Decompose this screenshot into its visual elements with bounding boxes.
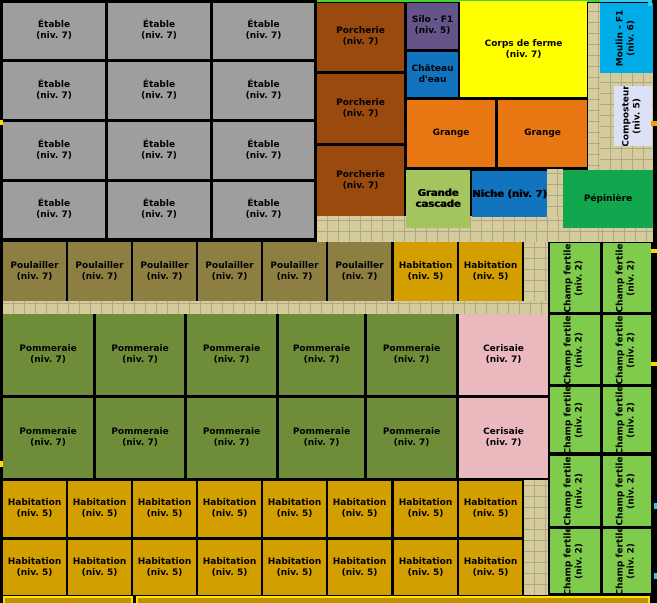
tile-label: Poulailler(niv. 7) — [205, 261, 253, 283]
tile-label-line: (niv. 7) — [335, 272, 383, 283]
edge-mark-yellow — [651, 249, 657, 253]
tile-label-line: Poulailler — [205, 261, 253, 272]
tile-label-line: (niv. 7) — [203, 438, 260, 449]
tile-label: Habitation(niv. 5) — [464, 557, 518, 579]
tile-etable[interactable]: Étable(niv. 7) — [213, 122, 314, 179]
tile-label-line: Château — [412, 64, 454, 75]
tile-label-line: (niv. 7) — [36, 31, 72, 42]
tile-label-line: (niv. 7) — [483, 438, 524, 449]
tile-poulailler[interactable]: Poulailler(niv. 7) — [263, 242, 326, 301]
tile-label: Champ fertile(niv. 2) — [564, 456, 586, 525]
tile-label-line: Champ fertile — [564, 387, 575, 452]
tile-label-line: (niv. 7) — [246, 31, 282, 42]
tile-etable[interactable]: Étable(niv. 7) — [3, 62, 105, 119]
tile-label: Habitation(niv. 5) — [203, 498, 257, 520]
tile-label-line: (niv. 7) — [10, 272, 58, 283]
tile-label: Habitation(niv. 5) — [203, 557, 257, 579]
edge-mark-yellow — [0, 120, 3, 125]
tile-label-line: (niv. 7) — [203, 355, 260, 366]
tile-label-line: (niv. 5) — [203, 509, 257, 520]
tile-label: Habitation(niv. 5) — [333, 557, 387, 579]
tile-habitation[interactable]: Habitation(niv. 5) — [328, 481, 391, 537]
tile-label: Habitation(niv. 5) — [73, 557, 127, 579]
tile-label-line: Habitation — [333, 557, 387, 568]
tile-label: Champ fertile(niv. 2) — [564, 243, 586, 312]
tile-label-line: (niv. 7) — [141, 210, 177, 221]
tile-champ-fertile[interactable]: Champ fertile(niv. 2) — [550, 243, 600, 312]
tile-label: Poulailler(niv. 7) — [140, 261, 188, 283]
tile-champ-fertile[interactable]: Champ fertile(niv. 2) — [603, 243, 651, 312]
tile-label-line: (niv. 7) — [111, 355, 168, 366]
tile-label-line: (niv. 7) — [336, 109, 385, 120]
tile-label: Habitation(niv. 5) — [73, 498, 127, 520]
path-region — [3, 301, 548, 314]
tile-label-line: (niv. 5) — [203, 568, 257, 579]
tile-label-line: Champ fertile — [564, 315, 575, 384]
tile-label: Porcherie(niv. 7) — [336, 98, 385, 120]
tile-label: Composteur(niv. 5) — [622, 86, 644, 146]
tile-label-line: (niv. 7) — [336, 37, 385, 48]
tile-label-line: Habitation — [268, 557, 322, 568]
tile-label-line: (niv. 5) — [73, 568, 127, 579]
tile-label: Châteaud'eau — [412, 64, 454, 86]
tile-label-line: Habitation — [138, 557, 192, 568]
tile-label: Champ fertile(niv. 2) — [564, 315, 586, 384]
tile-label-line: Étable — [36, 80, 72, 91]
tile-label-line: Habitation — [464, 557, 518, 568]
tile-label-line: Poulailler — [75, 261, 123, 272]
tile-label-line: (niv. 2) — [575, 387, 586, 452]
tile-pommeraie[interactable]: Pommeraie(niv. 7) — [279, 398, 364, 478]
tile-label-line: Habitation — [8, 557, 62, 568]
tile-label-line: Corps de ferme — [485, 39, 563, 50]
tile-label: Pommeraie(niv. 7) — [293, 427, 350, 449]
tile-composteur[interactable]: Composteur(niv. 5) — [614, 86, 652, 146]
tile-label-line: (niv. 2) — [627, 315, 638, 384]
tile-etable[interactable]: Étable(niv. 7) — [213, 62, 314, 119]
tile-label-line: Cerisaie — [483, 344, 524, 355]
tile-label: Étable(niv. 7) — [36, 80, 72, 102]
tile-pommeraie[interactable]: Pommeraie(niv. 7) — [367, 314, 456, 395]
cutoff-bottom-box — [3, 596, 133, 603]
tile-etable[interactable]: Étable(niv. 7) — [108, 3, 210, 59]
tile-label: Habitation(niv. 5) — [399, 557, 453, 579]
tile-label: Champ fertile(niv. 2) — [616, 387, 638, 452]
tile-label: Pépinière — [584, 194, 632, 205]
tile-champ-fertile[interactable]: Champ fertile(niv. 2) — [603, 456, 651, 526]
tile-label-line: Étable — [246, 80, 282, 91]
tile-habitation[interactable]: Habitation(niv. 5) — [3, 540, 66, 595]
tile-label-line: (niv. 7) — [270, 272, 318, 283]
tile-moulin-f1[interactable]: Moulin - F1(niv. 6) — [600, 3, 653, 73]
tile-cerisaie[interactable]: Cerisaie(niv. 7) — [459, 398, 548, 478]
tile-etable[interactable]: Étable(niv. 7) — [108, 122, 210, 179]
tile-habitation[interactable]: Habitation(niv. 5) — [394, 481, 457, 537]
tile-champ-fertile[interactable]: Champ fertile(niv. 2) — [603, 529, 651, 593]
tile-grange[interactable]: Grange — [498, 100, 587, 167]
tile-label: Pommeraie(niv. 7) — [111, 427, 168, 449]
tile-label-line: (niv. 5) — [268, 509, 322, 520]
tile-champ-fertile[interactable]: Champ fertile(niv. 2) — [603, 387, 651, 452]
tile-corps-de-ferme[interactable]: Corps de ferme(niv. 7) — [460, 3, 587, 97]
tile-label-line: (niv. 5) — [464, 568, 518, 579]
tile-pommeraie[interactable]: Pommeraie(niv. 7) — [367, 398, 456, 478]
tile-label-line: Pépinière — [584, 194, 632, 205]
tile-label-line: (niv. 5) — [464, 509, 518, 520]
tile-label-line: (niv. 2) — [627, 456, 638, 525]
tile-label-line: (niv. 5) — [268, 568, 322, 579]
tile-label: Habitation(niv. 5) — [399, 261, 453, 283]
tile-label-line: Champ fertile — [616, 315, 627, 384]
tile-label: Cerisaie(niv. 7) — [483, 344, 524, 366]
tile-label-line: (niv. 2) — [627, 387, 638, 452]
tile-habitation[interactable]: Habitation(niv. 5) — [459, 481, 522, 537]
tile-habitation[interactable]: Habitation(niv. 5) — [263, 540, 326, 595]
tile-label-line: (niv. 5) — [399, 272, 453, 283]
tile-label-line: Pommeraie — [293, 427, 350, 438]
tile-label: Étable(niv. 7) — [36, 199, 72, 221]
tile-label-line: (niv. 5) — [73, 509, 127, 520]
tile-pepiniere[interactable]: Pépinière — [563, 170, 653, 228]
tile-porcherie[interactable]: Porcherie(niv. 7) — [317, 146, 404, 216]
tile-label: Étable(niv. 7) — [246, 140, 282, 162]
tile-label: Grange — [524, 128, 561, 139]
tile-label: Étable(niv. 7) — [246, 20, 282, 42]
cutoff-bottom-box — [136, 596, 650, 603]
tile-label-line: d'eau — [412, 75, 454, 86]
tile-silo-f1[interactable]: Silo - F1(niv. 5) — [407, 3, 458, 49]
tile-label-line: (niv. 2) — [575, 456, 586, 525]
tile-label-line: (niv. 5) — [333, 509, 387, 520]
tile-label: Grandecascade — [415, 188, 460, 210]
tile-poulailler[interactable]: Poulailler(niv. 7) — [133, 242, 196, 301]
tile-label-line: (niv. 7) — [483, 355, 524, 366]
tile-label: Pommeraie(niv. 7) — [203, 344, 260, 366]
tile-label-line: Habitation — [73, 498, 127, 509]
tile-label: Habitation(niv. 5) — [138, 498, 192, 520]
tile-label-line: Champ fertile — [616, 387, 627, 452]
tile-pommeraie[interactable]: Pommeraie(niv. 7) — [187, 314, 276, 395]
tile-chateau-eau[interactable]: Châteaud'eau — [407, 52, 458, 97]
tile-label-line: (niv. 7) — [383, 438, 440, 449]
tile-label: Habitation(niv. 5) — [464, 261, 518, 283]
tile-label-line: (niv. 2) — [627, 243, 638, 312]
tile-label-line: (niv. 7) — [293, 438, 350, 449]
tile-label-line: Habitation — [138, 498, 192, 509]
tile-label: Silo - F1(niv. 5) — [412, 15, 453, 37]
tile-habitation[interactable]: Habitation(niv. 5) — [133, 481, 196, 537]
tile-label: Habitation(niv. 5) — [268, 498, 322, 520]
farm-map: Étable(niv. 7)Étable(niv. 7)Étable(niv. … — [0, 0, 657, 603]
tile-label-line: Grange — [433, 128, 470, 139]
tile-habitation[interactable]: Habitation(niv. 5) — [459, 540, 522, 595]
tile-label-line: Silo - F1 — [412, 15, 453, 26]
tile-label-line: (niv. 7) — [205, 272, 253, 283]
tile-label-line: (niv. 7) — [246, 151, 282, 162]
tile-label-line: Pommeraie — [383, 344, 440, 355]
tile-label-line: (niv. 7) — [383, 355, 440, 366]
tile-label-line: Étable — [141, 80, 177, 91]
tile-etable[interactable]: Étable(niv. 7) — [3, 182, 105, 238]
tile-label-line: Champ fertile — [564, 456, 575, 525]
tile-label: Habitation(niv. 5) — [8, 557, 62, 579]
tile-champ-fertile[interactable]: Champ fertile(niv. 2) — [550, 387, 600, 452]
tile-grange[interactable]: Grange — [407, 100, 495, 167]
tile-label: Pommeraie(niv. 7) — [19, 344, 76, 366]
tile-etable[interactable]: Étable(niv. 7) — [108, 62, 210, 119]
path-region — [524, 480, 548, 595]
tile-label-line: Grange — [524, 128, 561, 139]
tile-label-line: Habitation — [399, 557, 453, 568]
tile-label-line: Champ fertile — [616, 243, 627, 312]
tile-label-line: Étable — [246, 140, 282, 151]
tile-champ-fertile[interactable]: Champ fertile(niv. 2) — [550, 456, 600, 526]
tile-label-line: Porcherie — [336, 26, 385, 37]
edge-mark-yellow — [651, 362, 657, 366]
tile-habitation[interactable]: Habitation(niv. 5) — [328, 540, 391, 595]
tile-label-line: (niv. 5) — [399, 568, 453, 579]
tile-label-line: (niv. 5) — [8, 509, 62, 520]
tile-label-line: Moulin - F1 — [616, 10, 627, 67]
tile-label: Grange — [433, 128, 470, 139]
tile-label: Porcherie(niv. 7) — [336, 170, 385, 192]
tile-label: Étable(niv. 7) — [36, 140, 72, 162]
tile-etable[interactable]: Étable(niv. 7) — [213, 182, 314, 238]
tile-label-line: (niv. 2) — [575, 315, 586, 384]
tile-label: Poulailler(niv. 7) — [75, 261, 123, 283]
tile-pommeraie[interactable]: Pommeraie(niv. 7) — [3, 398, 93, 478]
tile-label: Habitation(niv. 5) — [464, 498, 518, 520]
tile-label-line: (niv. 7) — [485, 50, 563, 61]
tile-label-line: (niv. 2) — [627, 529, 638, 593]
tile-habitation[interactable]: Habitation(niv. 5) — [198, 540, 261, 595]
tile-label: Champ fertile(niv. 2) — [616, 456, 638, 525]
tile-label-line: Composteur — [622, 86, 633, 146]
path-region — [547, 169, 563, 217]
tile-label-line: (niv. 7) — [36, 151, 72, 162]
tile-label-line: (niv. 7) — [111, 438, 168, 449]
tile-label: Poulailler(niv. 7) — [270, 261, 318, 283]
tile-label: Champ fertile(niv. 2) — [616, 243, 638, 312]
tile-label-line: (niv. 5) — [399, 509, 453, 520]
tile-label-line: (niv. 7) — [19, 438, 76, 449]
tile-label-line: (niv. 5) — [333, 568, 387, 579]
tile-label-line: Pommeraie — [383, 427, 440, 438]
edge-mark-orange — [651, 121, 657, 126]
tile-label-line: (niv. 5) — [138, 509, 192, 520]
tile-label: Étable(niv. 7) — [141, 140, 177, 162]
tile-label-line: Habitation — [399, 498, 453, 509]
tile-etable[interactable]: Étable(niv. 7) — [3, 122, 105, 179]
tile-etable[interactable]: Étable(niv. 7) — [3, 3, 105, 59]
tile-label: Champ fertile(niv. 2) — [616, 529, 638, 593]
tile-label-line: (niv. 7) — [141, 31, 177, 42]
tile-label-line: (niv. 5) — [8, 568, 62, 579]
tile-label-line: Grande — [415, 188, 460, 199]
tile-label-line: Habitation — [333, 498, 387, 509]
tile-pommeraie[interactable]: Pommeraie(niv. 7) — [96, 398, 184, 478]
tile-label: Pommeraie(niv. 7) — [203, 427, 260, 449]
tile-label-line: Poulailler — [335, 261, 383, 272]
tile-habitation[interactable]: Habitation(niv. 5) — [459, 242, 522, 301]
tile-label: Habitation(niv. 5) — [138, 557, 192, 579]
tile-grande-cascade[interactable]: Grandecascade — [406, 170, 470, 228]
tile-pommeraie[interactable]: Pommeraie(niv. 7) — [96, 314, 184, 395]
tile-pommeraie[interactable]: Pommeraie(niv. 7) — [187, 398, 276, 478]
tile-label-line: (niv. 7) — [246, 210, 282, 221]
tile-label-line: (niv. 7) — [140, 272, 188, 283]
tile-label-line: (niv. 7) — [246, 91, 282, 102]
tile-label: Corps de ferme(niv. 7) — [485, 39, 563, 61]
tile-label-line: (niv. 5) — [633, 86, 644, 146]
tile-label: Moulin - F1(niv. 6) — [616, 10, 638, 67]
tile-label-line: Pommeraie — [203, 344, 260, 355]
tile-label-line: Étable — [141, 199, 177, 210]
tile-poulailler[interactable]: Poulailler(niv. 7) — [68, 242, 131, 301]
tile-label-line: (niv. 2) — [575, 243, 586, 312]
cutoff-top-notch — [648, 0, 652, 6]
tile-label-line: (niv. 6) — [627, 10, 638, 67]
tile-label: Étable(niv. 7) — [141, 20, 177, 42]
tile-label-line: Habitation — [464, 498, 518, 509]
tile-label: Champ fertile(niv. 2) — [564, 387, 586, 452]
tile-label-line: (niv. 7) — [141, 151, 177, 162]
tile-label: Habitation(niv. 5) — [8, 498, 62, 520]
tile-label-line: Champ fertile — [616, 456, 627, 525]
tile-label-line: Pommeraie — [203, 427, 260, 438]
tile-label-line: Habitation — [399, 261, 453, 272]
tile-label-line: Habitation — [8, 498, 62, 509]
tile-pommeraie[interactable]: Pommeraie(niv. 7) — [3, 314, 93, 395]
tile-label-line: Poulailler — [10, 261, 58, 272]
tile-label: Étable(niv. 7) — [141, 80, 177, 102]
tile-label-line: (niv. 7) — [75, 272, 123, 283]
tile-label: Étable(niv. 7) — [246, 80, 282, 102]
tile-label-line: Habitation — [73, 557, 127, 568]
tile-label-line: (niv. 7) — [293, 355, 350, 366]
tile-habitation[interactable]: Habitation(niv. 5) — [198, 481, 261, 537]
tile-label: Porcherie(niv. 7) — [336, 26, 385, 48]
tile-label-line: Étable — [36, 140, 72, 151]
tile-label-line: Porcherie — [336, 170, 385, 181]
tile-poulailler[interactable]: Poulailler(niv. 7) — [3, 242, 66, 301]
tile-label-line: Étable — [141, 20, 177, 31]
tile-niche[interactable]: Niche (niv. 7) — [472, 171, 547, 217]
tile-habitation[interactable]: Habitation(niv. 5) — [133, 540, 196, 595]
tile-label: Pommeraie(niv. 7) — [111, 344, 168, 366]
tile-label-line: (niv. 7) — [36, 91, 72, 102]
tile-label-line: Poulailler — [270, 261, 318, 272]
tile-label: Pommeraie(niv. 7) — [293, 344, 350, 366]
tile-label-line: Poulailler — [140, 261, 188, 272]
tile-label-line: Habitation — [203, 498, 257, 509]
tile-label: Poulailler(niv. 7) — [10, 261, 58, 283]
tile-label-line: (niv. 7) — [141, 91, 177, 102]
tile-cerisaie[interactable]: Cerisaie(niv. 7) — [459, 314, 548, 395]
tile-porcherie[interactable]: Porcherie(niv. 7) — [317, 74, 404, 143]
tile-porcherie[interactable]: Porcherie(niv. 7) — [317, 3, 404, 71]
tile-label-line: Champ fertile — [564, 529, 575, 593]
tile-label-line: Pommeraie — [19, 344, 76, 355]
tile-label-line: Pommeraie — [293, 344, 350, 355]
tile-label: Étable(niv. 7) — [36, 20, 72, 42]
tile-label: Cerisaie(niv. 7) — [483, 427, 524, 449]
tile-label-line: Habitation — [203, 557, 257, 568]
tile-label: Pommeraie(niv. 7) — [19, 427, 76, 449]
tile-label-line: Étable — [36, 20, 72, 31]
tile-label-line: (niv. 5) — [412, 26, 453, 37]
tile-habitation[interactable]: Habitation(niv. 5) — [394, 540, 457, 595]
edge-mark-yellow — [0, 461, 3, 467]
tile-label-line: Habitation — [464, 261, 518, 272]
tile-label: Poulailler(niv. 7) — [335, 261, 383, 283]
tile-label: Étable(niv. 7) — [246, 199, 282, 221]
tile-label-line: Étable — [36, 199, 72, 210]
tile-label-line: Étable — [141, 140, 177, 151]
tile-champ-fertile[interactable]: Champ fertile(niv. 2) — [550, 529, 600, 593]
tile-label: Champ fertile(niv. 2) — [616, 315, 638, 384]
tile-label: Pommeraie(niv. 7) — [383, 344, 440, 366]
tile-label-line: Étable — [246, 199, 282, 210]
tile-label-line: (niv. 5) — [464, 272, 518, 283]
tile-label-line: cascade — [415, 199, 460, 210]
tile-label-line: (niv. 5) — [138, 568, 192, 579]
tile-label-line: Pommeraie — [111, 344, 168, 355]
tile-habitation[interactable]: Habitation(niv. 5) — [394, 242, 457, 301]
tile-label-line: Porcherie — [336, 98, 385, 109]
tile-habitation[interactable]: Habitation(niv. 5) — [3, 481, 66, 537]
tile-label-line: Pommeraie — [19, 427, 76, 438]
tile-label-line: Cerisaie — [483, 427, 524, 438]
tile-label-line: (niv. 2) — [575, 529, 586, 593]
tile-label: Champ fertile(niv. 2) — [564, 529, 586, 593]
tile-label-line: (niv. 7) — [336, 181, 385, 192]
tile-label: Habitation(niv. 5) — [333, 498, 387, 520]
tile-label-line: Étable — [246, 20, 282, 31]
tile-label-line: Pommeraie — [111, 427, 168, 438]
tile-label-line: (niv. 7) — [36, 210, 72, 221]
tile-habitation[interactable]: Habitation(niv. 5) — [68, 481, 131, 537]
tile-etable[interactable]: Étable(niv. 7) — [108, 182, 210, 238]
tile-label-line: Champ fertile — [564, 243, 575, 312]
tile-label: Pommeraie(niv. 7) — [383, 427, 440, 449]
tile-label-line: Niche (niv. 7) — [472, 189, 547, 200]
tile-label: Habitation(niv. 5) — [399, 498, 453, 520]
tile-label-line: (niv. 7) — [19, 355, 76, 366]
tile-label-line: Habitation — [268, 498, 322, 509]
tile-label: Habitation(niv. 5) — [268, 557, 322, 579]
tile-label: Niche (niv. 7) — [472, 189, 547, 200]
tile-label: Étable(niv. 7) — [141, 199, 177, 221]
tile-habitation[interactable]: Habitation(niv. 5) — [68, 540, 131, 595]
tile-poulailler[interactable]: Poulailler(niv. 7) — [328, 242, 391, 301]
tile-pommeraie[interactable]: Pommeraie(niv. 7) — [279, 314, 364, 395]
tile-poulailler[interactable]: Poulailler(niv. 7) — [198, 242, 261, 301]
tile-champ-fertile[interactable]: Champ fertile(niv. 2) — [603, 315, 651, 384]
tile-champ-fertile[interactable]: Champ fertile(niv. 2) — [550, 315, 600, 384]
cutoff-top-cyan — [600, 0, 651, 2]
tile-etable[interactable]: Étable(niv. 7) — [213, 3, 314, 59]
tile-label-line: Champ fertile — [616, 529, 627, 593]
tile-habitation[interactable]: Habitation(niv. 5) — [263, 481, 326, 537]
cutoff-top-yellow — [460, 1, 587, 3]
